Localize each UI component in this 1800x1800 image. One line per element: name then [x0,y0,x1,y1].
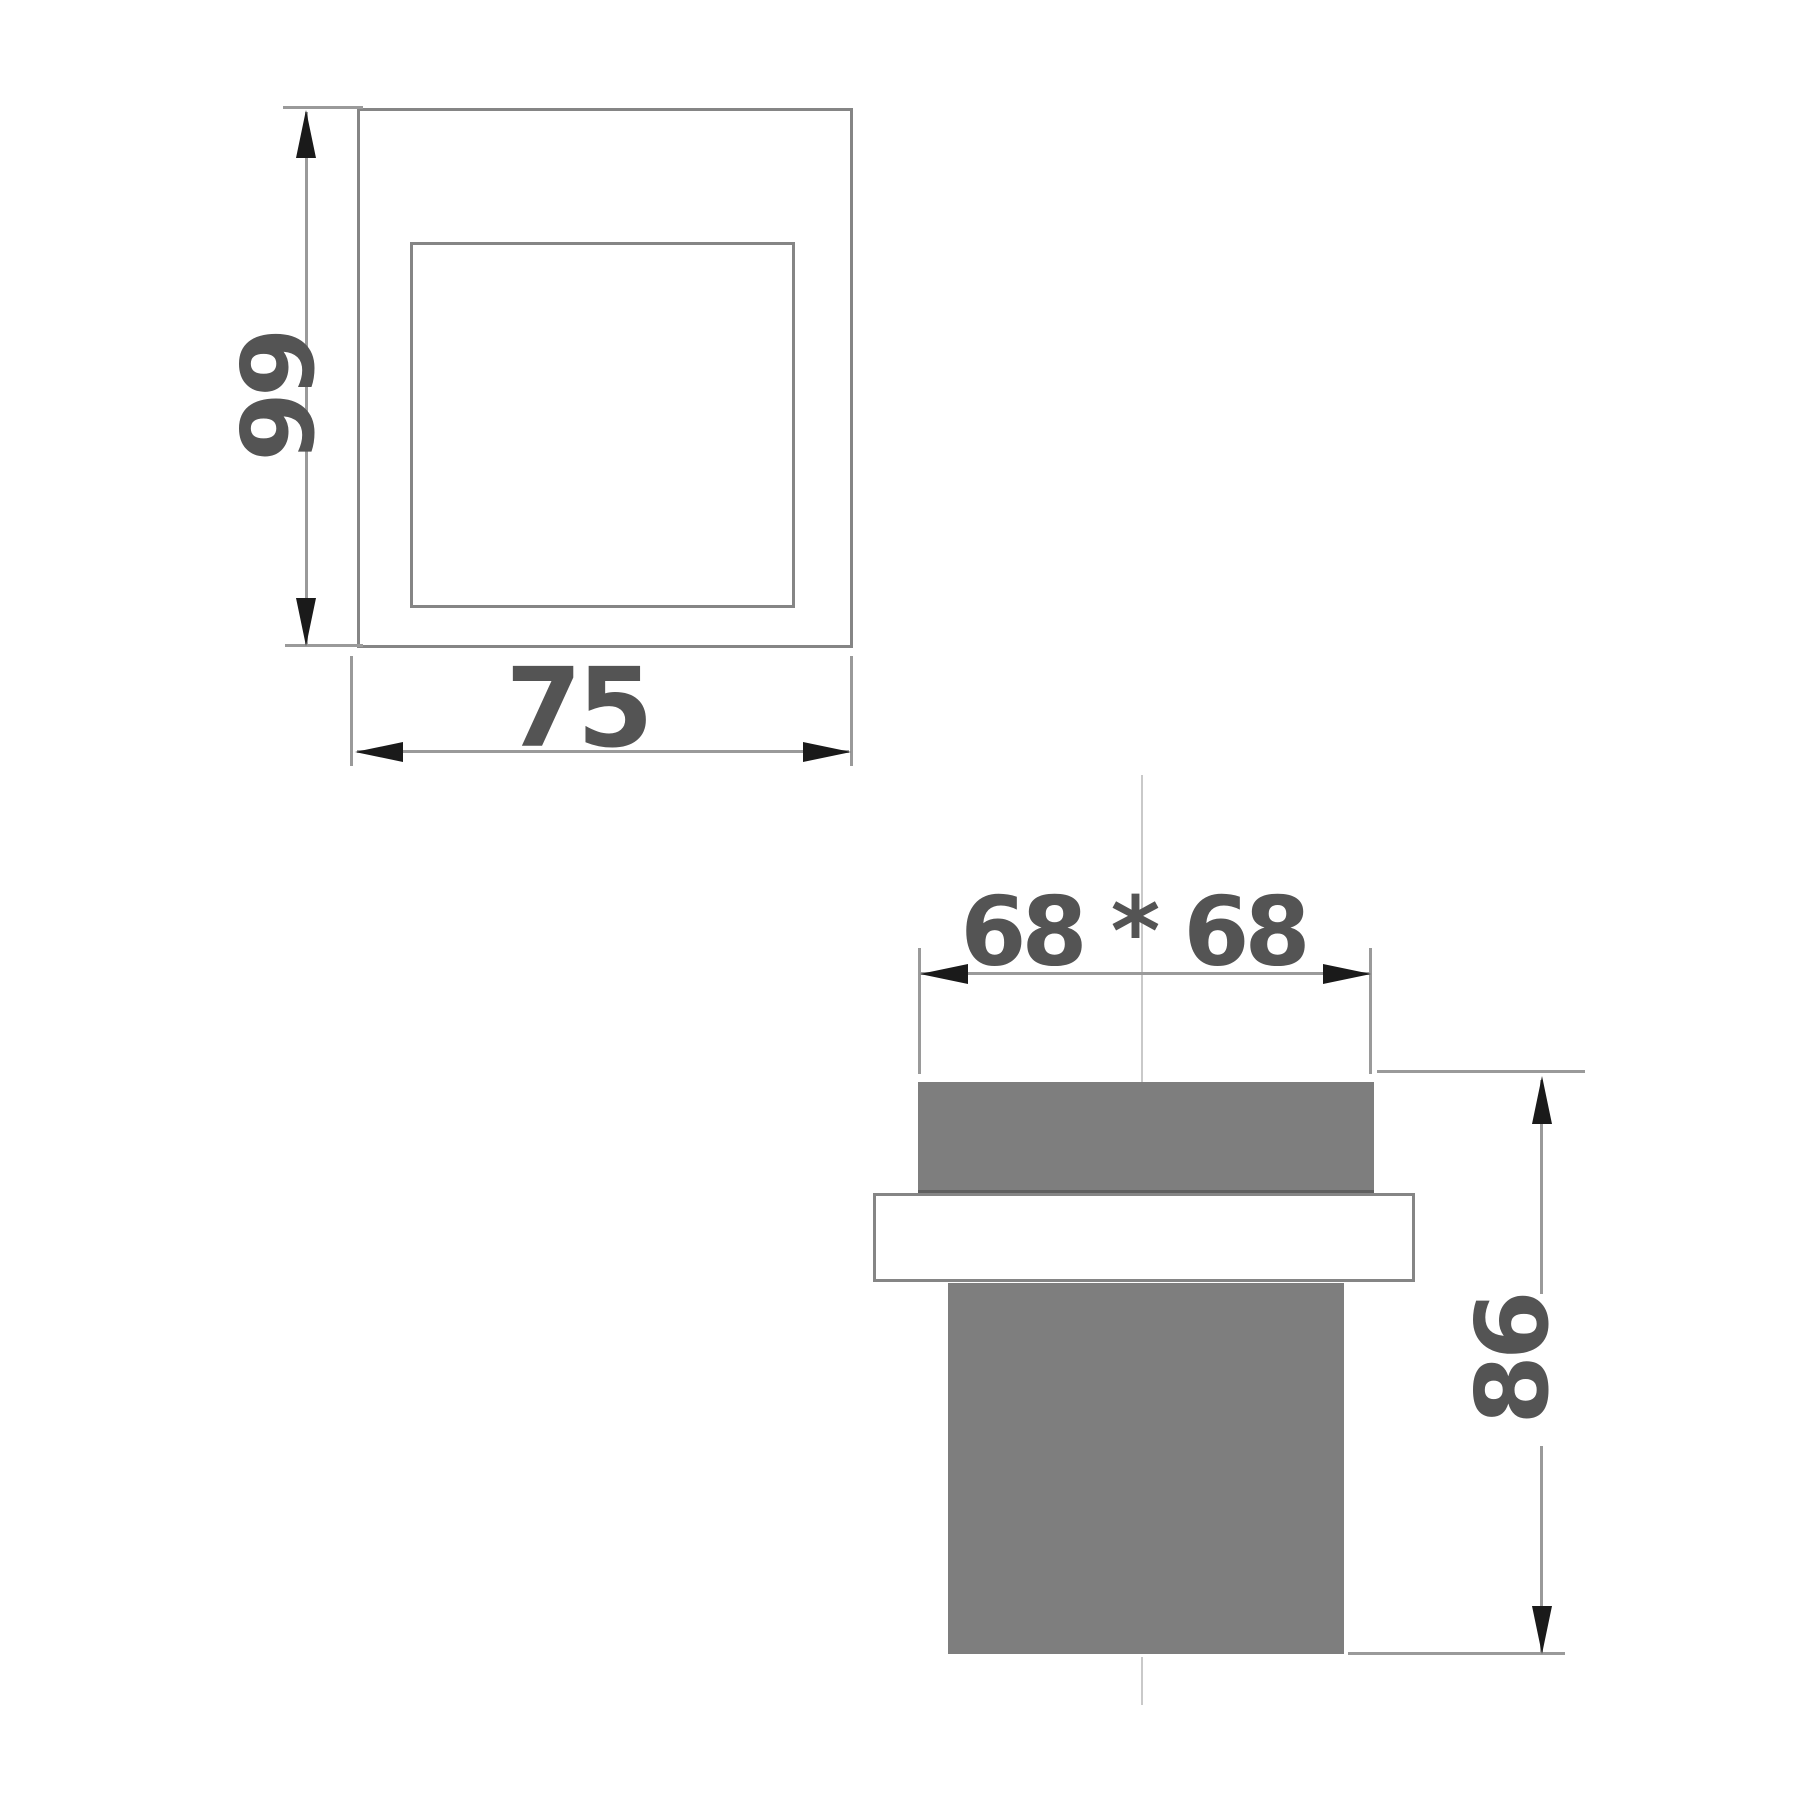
plan-height-dim-label: 99 [229,332,329,461]
plan-width-dim-label: 75 [505,653,648,763]
plan-height-arrow-top-icon [296,110,316,158]
side-body-block [948,1283,1344,1654]
side-flange [873,1193,1415,1282]
side-height-arrow-top-icon [1532,1076,1552,1124]
plan-inner-rect [410,242,795,608]
plan-width-ext-left-line [350,656,353,766]
side-rubber-block [918,1082,1374,1193]
plan-height-arrow-bottom-icon [296,598,316,646]
technical-drawing-canvas: 99 75 68 * 68 86 [0,0,1800,1800]
plan-height-ext-top-line [283,106,363,109]
side-width-arrow-right-icon [1323,964,1371,984]
plan-width-arrow-right-icon [803,742,851,762]
plan-width-arrow-left-icon [355,742,403,762]
side-height-arrow-bottom-icon [1532,1606,1552,1654]
side-centerline-bottom [1141,1657,1143,1705]
side-height-ext-top-line [1377,1070,1585,1073]
side-height-dim-label: 86 [1463,1295,1563,1424]
side-width-dim-label: 68 * 68 [960,886,1305,981]
